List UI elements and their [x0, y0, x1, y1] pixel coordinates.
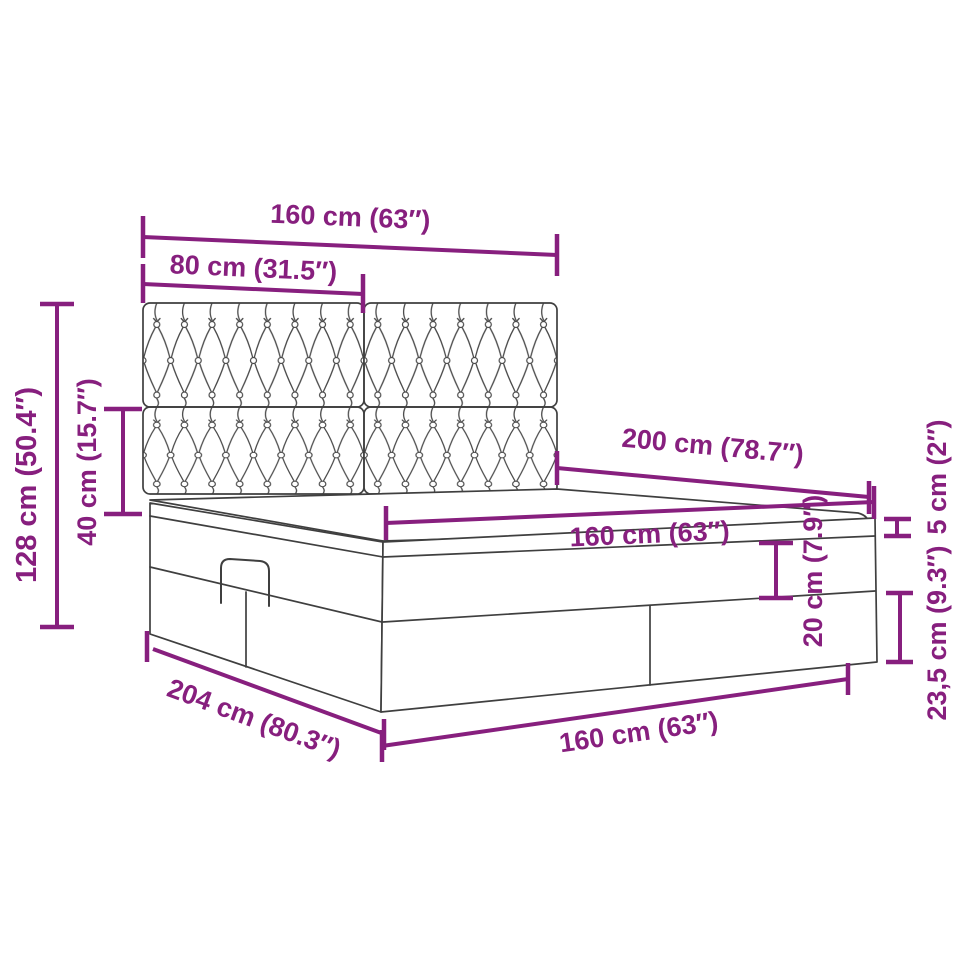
dim-overall-height: 128 cm (50.4″): [11, 304, 74, 627]
dim-headboard-half-width-label: 80 cm (31.5″): [169, 249, 338, 287]
headboard: [143, 303, 557, 494]
dim-topper-height: 5 cm (2″): [884, 420, 952, 536]
dim-overall-height-label: 128 cm (50.4″): [11, 387, 43, 583]
headboard-panel-bottom-left: [143, 407, 364, 494]
dim-base-height: 23,5 cm (9.3″): [886, 545, 952, 720]
dim-bed-width-label: 160 cm (63″): [557, 706, 720, 759]
dim-headboard-lower-height: 40 cm (15.7″): [72, 378, 142, 546]
headboard-panel-bottom-right: [364, 407, 557, 494]
dim-headboard-lower-height-label: 40 cm (15.7″): [72, 378, 102, 546]
bed-dimension-diagram: 160 cm (63″) 80 cm (31.5″) 128 cm (50.4″…: [0, 0, 961, 960]
headboard-panel-top-right: [364, 303, 557, 407]
headboard-panel-top-left: [143, 303, 364, 407]
dim-mattress-height-label: 20 cm (7.9″): [798, 495, 828, 648]
dim-topper-height-label: 5 cm (2″): [922, 420, 952, 535]
dim-headboard-width-label: 160 cm (63″): [270, 199, 431, 236]
diagram-canvas: 160 cm (63″) 80 cm (31.5″) 128 cm (50.4″…: [0, 0, 961, 960]
dim-mattress-length-label: 200 cm (78.7″): [621, 423, 806, 470]
dim-base-height-label: 23,5 cm (9.3″): [922, 545, 952, 720]
